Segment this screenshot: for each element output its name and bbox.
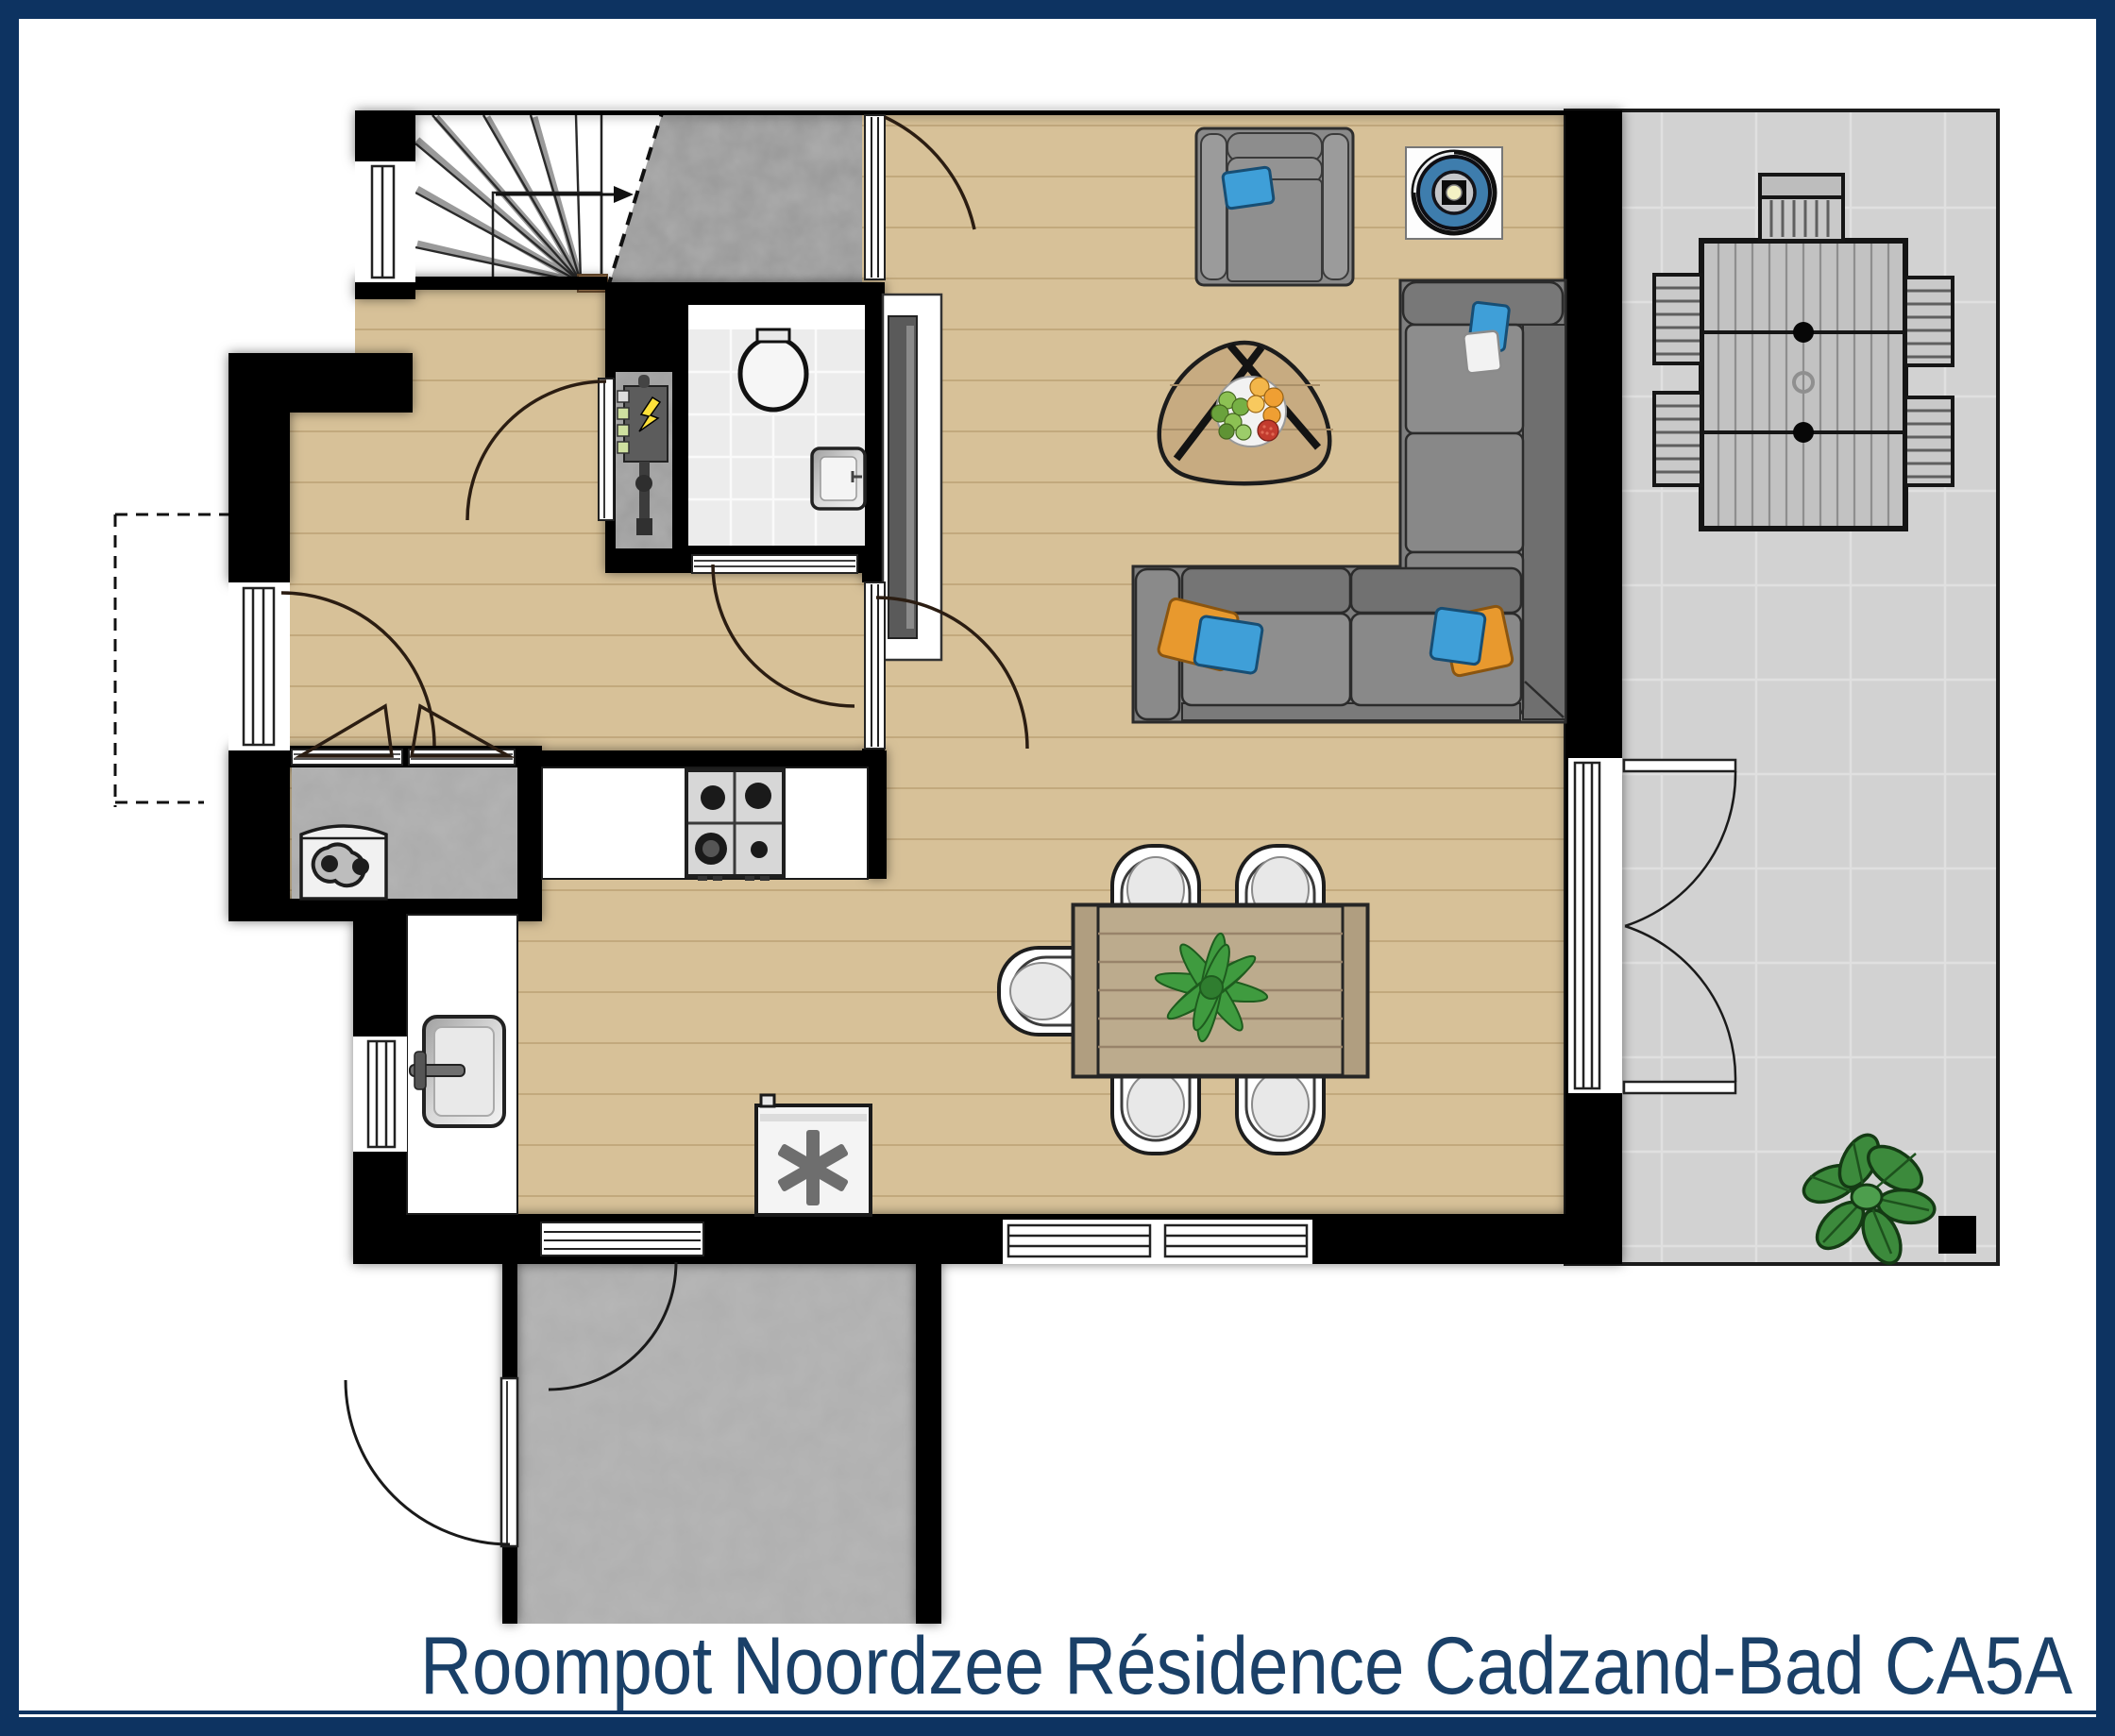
svg-text:Roompot Noordzee Résidence Cad: Roompot Noordzee Résidence Cadzand-Bad C… [420, 1621, 2073, 1711]
